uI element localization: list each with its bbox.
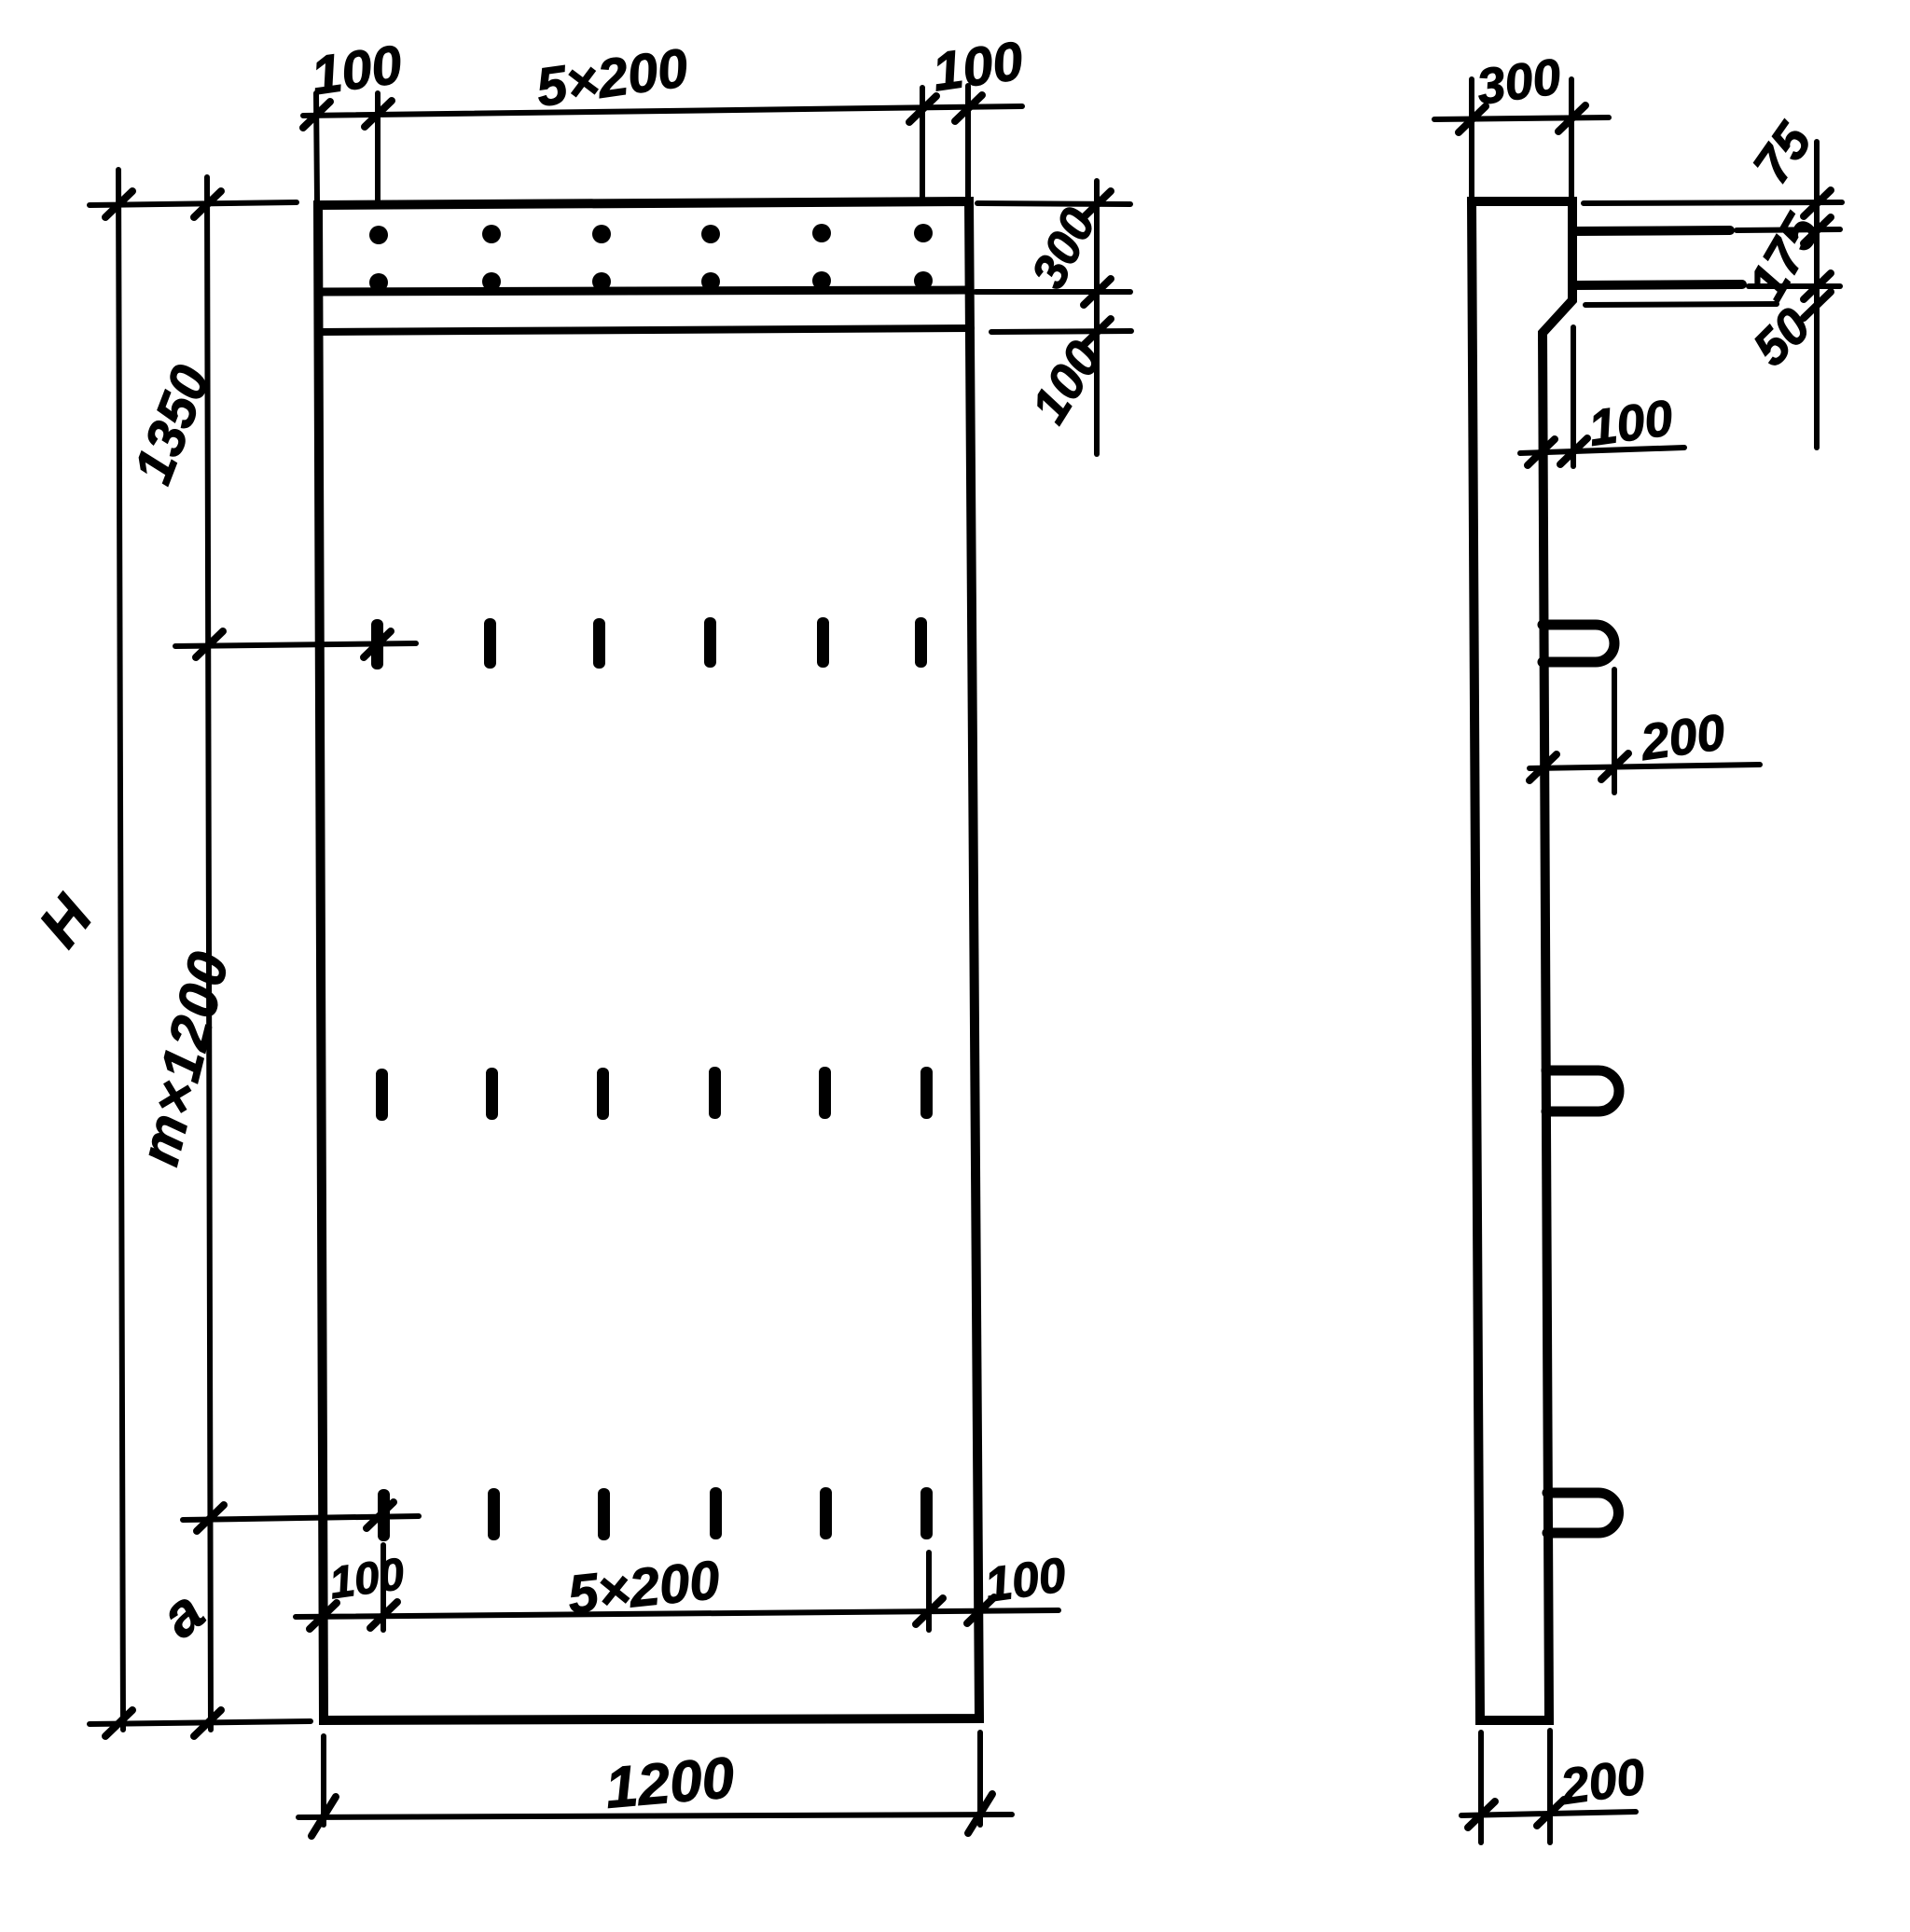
svg-text:100: 100 — [326, 1550, 408, 1609]
svg-text:200: 200 — [1557, 1748, 1649, 1815]
svg-text:H: H — [25, 882, 105, 959]
svg-text:a: a — [147, 1578, 216, 1650]
svg-text:100: 100 — [308, 34, 406, 107]
svg-text:100: 100 — [929, 31, 1027, 103]
svg-text:1200: 1200 — [603, 1746, 737, 1821]
svg-text:5×200: 5×200 — [533, 37, 691, 118]
svg-text:200: 200 — [1637, 704, 1729, 771]
svg-text:300: 300 — [1474, 48, 1565, 116]
svg-text:300: 300 — [1021, 200, 1106, 297]
svg-text:75: 75 — [1741, 112, 1823, 194]
svg-text:m×1200: m×1200 — [128, 945, 242, 1171]
svg-text:100: 100 — [981, 1548, 1069, 1613]
svg-text:100: 100 — [1585, 390, 1677, 457]
